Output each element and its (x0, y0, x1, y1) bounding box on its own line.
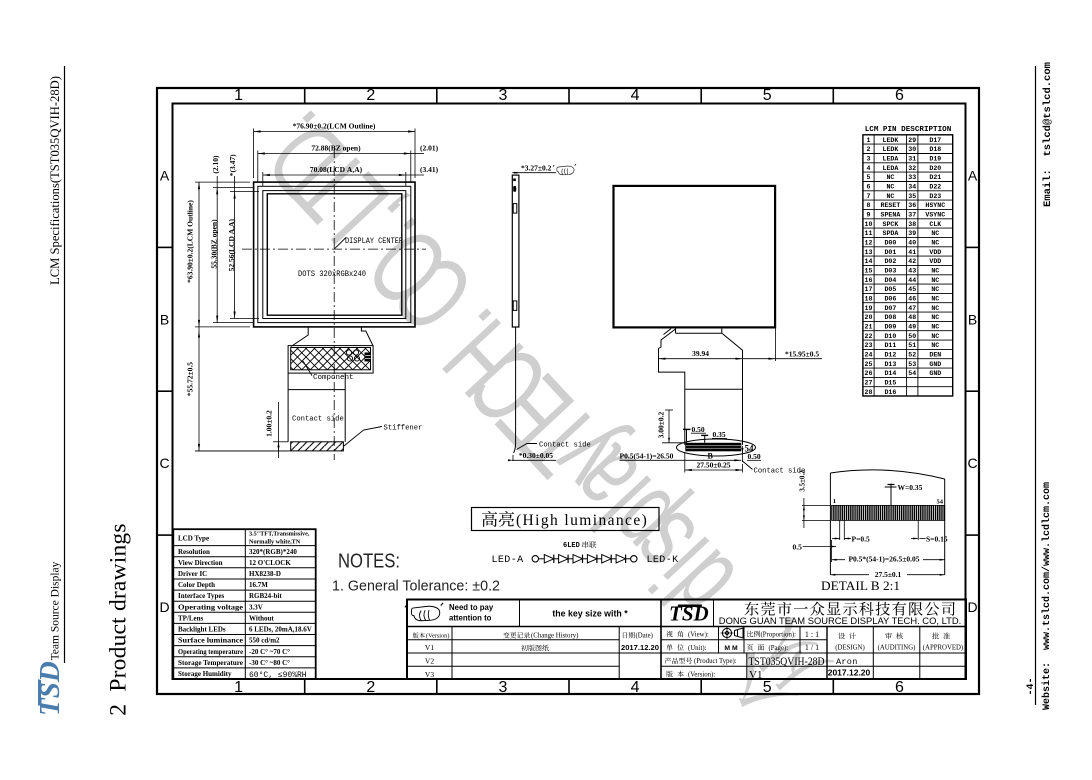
svg-text:2 Product drawings: 2 Product drawings (106, 523, 132, 715)
svg-text:33: 33 (908, 174, 916, 181)
svg-text:Color Depth: Color Depth (178, 581, 215, 589)
svg-text:550 cd/m2: 550 cd/m2 (249, 637, 280, 645)
svg-text:NC: NC (931, 286, 939, 293)
svg-text:11: 11 (865, 230, 873, 237)
svg-text:4: 4 (631, 87, 640, 104)
svg-text:(Page):: (Page): (769, 645, 789, 652)
svg-text:17: 17 (865, 286, 873, 293)
svg-text:NC: NC (931, 333, 939, 340)
svg-text:54: 54 (908, 370, 916, 377)
svg-text:34: 34 (908, 184, 916, 191)
svg-text:D02: D02 (884, 258, 896, 265)
svg-text:Contact side: Contact side (754, 468, 806, 476)
svg-text:*63.90±0.2(LCM Outline): *63.90±0.2(LCM Outline) (186, 200, 195, 283)
svg-text:19: 19 (865, 305, 873, 312)
svg-text:5: 5 (763, 87, 772, 104)
svg-text:D06: D06 (884, 296, 896, 303)
svg-text:NC: NC (931, 230, 939, 237)
svg-text:the key size with *: the key size with * (552, 609, 628, 619)
svg-text:Website: www.tslcd.com/www.lc: Website: www.tslcd.com/www.lcdlcm.com (1041, 482, 1053, 710)
svg-text:DOTS 320xRGBx240: DOTS 320xRGBx240 (298, 269, 366, 279)
svg-text:LEDK: LEDK (882, 137, 898, 144)
svg-text:RESET: RESET (881, 202, 901, 209)
svg-text:Storage Temperature: Storage Temperature (178, 659, 243, 667)
svg-text:70.08(LCD A,A): 70.08(LCD A,A) (310, 165, 363, 174)
svg-text:0.35: 0.35 (713, 430, 726, 439)
svg-text:TP/Lens: TP/Lens (178, 615, 204, 623)
svg-text:B: B (968, 311, 977, 327)
svg-text:NC: NC (931, 296, 939, 303)
svg-text:(Change History): (Change History) (531, 633, 578, 640)
svg-text:Operating voltage: Operating voltage (178, 603, 243, 611)
svg-text:Component: Component (313, 374, 354, 382)
svg-text:LEDA: LEDA (882, 156, 898, 163)
svg-text:D21: D21 (929, 174, 941, 181)
svg-text:3: 3 (498, 679, 507, 696)
svg-text:1. General Tolerance: ±0.2: 1. General Tolerance: ±0.2 (332, 578, 500, 595)
svg-text:1: 1 (234, 679, 243, 696)
svg-text:37: 37 (908, 212, 916, 219)
svg-text:3.5±0.2: 3.5±0.2 (799, 470, 807, 492)
svg-text:SPENA: SPENA (881, 212, 901, 219)
svg-text:Email: tslcd@tslcd.com: Email: tslcd@tslcd.com (1042, 62, 1054, 207)
svg-text:60°C, ≤90%RH: 60°C, ≤90%RH (249, 671, 307, 680)
svg-text:LED-K: LED-K (647, 555, 679, 566)
svg-text:39: 39 (908, 230, 916, 237)
svg-text:NC: NC (931, 342, 939, 349)
svg-text:6: 6 (895, 679, 904, 696)
svg-text:3: 3 (867, 156, 871, 163)
svg-text:D18: D18 (929, 146, 941, 153)
svg-text:(Proportion):: (Proportion): (761, 632, 797, 639)
svg-text:32: 32 (908, 165, 916, 172)
svg-text:LCM Specifications(TST035QVIH-: LCM Specifications(TST035QVIH-28D) (48, 76, 62, 285)
svg-text:47: 47 (908, 305, 916, 312)
svg-text:NOTES:: NOTES: (338, 550, 400, 573)
svg-text:12 O'CLOCK: 12 O'CLOCK (249, 559, 291, 567)
svg-text:35: 35 (908, 193, 916, 200)
svg-text:1.00±0.2: 1.00±0.2 (265, 410, 274, 437)
svg-text:28: 28 (865, 389, 873, 396)
svg-text:TST035QVIH-28D: TST035QVIH-28D (749, 656, 825, 668)
svg-text:P0.5*(54-1)=26.5±0.05: P0.5*(54-1)=26.5±0.05 (848, 555, 919, 564)
svg-text:D: D (967, 599, 977, 615)
svg-text:45: 45 (908, 286, 916, 293)
svg-text:D19: D19 (929, 156, 941, 163)
svg-text:Stiffener: Stiffener (384, 425, 423, 433)
svg-text:D00: D00 (884, 240, 896, 247)
svg-text:13: 13 (865, 249, 873, 256)
svg-text:*15.95±0.5: *15.95±0.5 (785, 350, 819, 359)
svg-text:Need to pay: Need to pay (449, 603, 494, 612)
svg-text:NC: NC (931, 240, 939, 247)
svg-text:41: 41 (908, 249, 916, 256)
svg-text:1: 1 (867, 137, 871, 144)
svg-text:DONG GUAN TEAM SOURCE DISPLAY: DONG GUAN TEAM SOURCE DISPLAY TECH. CO, … (719, 615, 961, 626)
svg-text:15: 15 (865, 268, 873, 275)
svg-text:4: 4 (631, 679, 640, 696)
svg-text:12: 12 (865, 240, 873, 247)
svg-text:(View):: (View): (688, 632, 709, 639)
svg-text:NC: NC (931, 268, 939, 275)
svg-text:D05: D05 (884, 286, 896, 293)
svg-text:72.88(BZ open): 72.88(BZ open) (311, 144, 361, 153)
svg-text:4: 4 (867, 165, 871, 172)
svg-text:46: 46 (908, 296, 916, 303)
svg-text:*76.90±0.2(LCM Outline): *76.90±0.2(LCM Outline) (293, 122, 376, 131)
svg-text:5: 5 (867, 174, 871, 181)
svg-text:DETAIL B 2:1: DETAIL B 2:1 (821, 579, 900, 593)
svg-text:(Version): (Version) (426, 633, 449, 640)
svg-text:B: B (160, 311, 169, 327)
svg-text:D08: D08 (884, 314, 896, 321)
svg-text:P0.5(54-1)=26.50: P0.5(54-1)=26.50 (620, 451, 674, 460)
svg-text:M M: M M (724, 645, 738, 652)
svg-text:SPDA: SPDA (882, 230, 898, 237)
svg-text:D03: D03 (884, 268, 896, 275)
svg-text:6: 6 (895, 87, 904, 104)
svg-text:1: 1 (833, 498, 836, 505)
svg-text:18: 18 (865, 296, 873, 303)
svg-text:C: C (159, 455, 169, 471)
svg-text:D23: D23 (929, 193, 941, 200)
svg-text:39.94: 39.94 (692, 349, 709, 358)
svg-text:30: 30 (908, 146, 916, 153)
svg-text:D13: D13 (884, 361, 896, 368)
svg-text:V1: V1 (425, 643, 434, 652)
svg-text:B: B (708, 452, 714, 461)
svg-text:GND: GND (929, 361, 941, 368)
svg-text:Surface luminance: Surface luminance (178, 637, 243, 645)
svg-text:NC: NC (931, 324, 939, 331)
svg-text:43: 43 (908, 268, 916, 275)
svg-text:25: 25 (865, 361, 873, 368)
svg-text:44: 44 (908, 277, 916, 284)
svg-text:51: 51 (908, 342, 916, 349)
svg-text:D22: D22 (929, 184, 941, 191)
svg-text:6 LEDs, 20mA,18.6V: 6 LEDs, 20mA,18.6V (249, 626, 312, 634)
svg-text:VDD: VDD (929, 249, 941, 256)
svg-text:SPCK: SPCK (882, 221, 898, 228)
svg-text:1 / 1: 1 / 1 (805, 643, 819, 652)
svg-text:3.00±0.2: 3.00±0.2 (657, 411, 666, 438)
svg-text:(2.01): (2.01) (420, 144, 439, 153)
svg-text:attention to: attention to (449, 614, 492, 623)
svg-text:2: 2 (366, 87, 375, 104)
svg-text:LCD Type: LCD Type (178, 535, 209, 543)
svg-text:D09: D09 (884, 324, 896, 331)
svg-text:0.5: 0.5 (793, 543, 803, 552)
svg-text:D14: D14 (884, 370, 896, 377)
svg-text:(Unit):: (Unit): (688, 645, 707, 652)
svg-text:NC: NC (931, 277, 939, 284)
svg-text:*3.27±0.2: *3.27±0.2 (521, 164, 552, 173)
svg-text:A: A (968, 167, 978, 183)
svg-text:31: 31 (908, 156, 916, 163)
svg-text:Resolution: Resolution (178, 548, 210, 556)
svg-text:C: C (967, 455, 977, 471)
svg-text:Team Source Display: Team Source Display (50, 561, 62, 660)
svg-text:52.56(LCD A,A): 52.56(LCD A,A) (227, 219, 236, 272)
svg-text:RGB24-bit: RGB24-bit (249, 592, 282, 600)
svg-text:Backlight LEDs: Backlight LEDs (178, 626, 226, 634)
svg-text:CLK: CLK (929, 221, 941, 228)
svg-text:8: 8 (867, 202, 871, 209)
svg-text:Without: Without (249, 615, 274, 623)
svg-text:2: 2 (867, 146, 871, 153)
svg-text:16.7M: 16.7M (249, 581, 268, 589)
svg-text:16: 16 (865, 277, 873, 284)
svg-text:Contact side: Contact side (292, 416, 344, 424)
svg-text:38: 38 (908, 221, 916, 228)
svg-text:VSYNC: VSYNC (925, 212, 945, 219)
svg-text:320*(RGB)*240: 320*(RGB)*240 (249, 548, 297, 556)
svg-text:NC: NC (931, 305, 939, 312)
svg-text:14: 14 (865, 258, 873, 265)
svg-text:LEDA: LEDA (882, 165, 898, 172)
svg-text:Normally white,TN: Normally white,TN (249, 539, 301, 546)
svg-text:27: 27 (865, 379, 873, 386)
svg-text:22: 22 (865, 333, 873, 340)
svg-text:*0.30±0.05: *0.30±0.05 (519, 451, 553, 460)
svg-text:9: 9 (867, 212, 871, 219)
svg-text:(Version):: (Version): (688, 671, 715, 678)
svg-text:1 : 1: 1 : 1 (805, 630, 819, 639)
svg-text:52: 52 (908, 352, 916, 359)
svg-text:29: 29 (908, 137, 916, 144)
svg-text:10: 10 (865, 221, 873, 228)
svg-text:A: A (160, 167, 170, 183)
svg-text:24: 24 (865, 352, 873, 359)
svg-text:D: D (159, 599, 169, 615)
svg-text:53: 53 (908, 361, 916, 368)
svg-text:-4-: -4- (1026, 677, 1037, 695)
svg-text:D10: D10 (884, 333, 896, 340)
svg-text:3: 3 (498, 87, 507, 104)
svg-text:20: 20 (865, 314, 873, 321)
svg-text:Operating temperature: Operating temperature (178, 648, 243, 656)
svg-text:55.30(BZ open): 55.30(BZ open) (209, 219, 218, 269)
svg-text:HX8238-D: HX8238-D (249, 570, 281, 578)
svg-text:NC: NC (886, 184, 894, 191)
svg-text:Aron: Aron (836, 657, 858, 667)
svg-text:-30 C° ~80 C°: -30 C° ~80 C° (249, 659, 290, 667)
svg-text:*(3.47): *(3.47) (228, 154, 237, 176)
svg-text:D11: D11 (884, 342, 896, 349)
svg-text:View Direction: View Direction (178, 559, 223, 567)
svg-text:NC: NC (886, 193, 894, 200)
svg-text:48: 48 (908, 314, 916, 321)
svg-text:(High luminance): (High luminance) (516, 512, 648, 529)
svg-text:Contact side: Contact side (539, 442, 591, 450)
svg-text:(Product Type):: (Product Type): (694, 658, 737, 665)
svg-text:LCM PIN DESCRIPTION: LCM PIN DESCRIPTION (865, 126, 952, 134)
svg-text:(AUDITING): (AUDITING) (878, 645, 916, 652)
svg-text:27.5±0.1: 27.5±0.1 (875, 570, 902, 579)
svg-text:2: 2 (366, 679, 375, 696)
svg-text:D12: D12 (884, 352, 896, 359)
svg-text:6: 6 (867, 184, 871, 191)
svg-text:5: 5 (763, 679, 772, 696)
svg-text:W=0.35: W=0.35 (898, 483, 923, 492)
svg-text:27.50±0.25: 27.50±0.25 (696, 461, 730, 470)
svg-text:3.3V: 3.3V (249, 603, 263, 611)
svg-text:HSYNC: HSYNC (925, 202, 945, 209)
svg-text:49: 49 (908, 324, 916, 331)
svg-text:D16: D16 (884, 389, 896, 396)
svg-text:DEN: DEN (929, 352, 941, 359)
svg-text:42: 42 (908, 258, 916, 265)
svg-text:(APPROVED): (APPROVED) (923, 645, 963, 652)
svg-text:-20 C° ~70 C°: -20 C° ~70 C° (249, 648, 290, 656)
svg-text:D15: D15 (884, 379, 896, 386)
svg-text:Driver IC: Driver IC (178, 570, 207, 578)
svg-text:VDD: VDD (929, 258, 941, 265)
svg-text:V1: V1 (749, 669, 762, 681)
svg-text:LED-A: LED-A (492, 555, 524, 566)
svg-text:V3: V3 (425, 670, 434, 679)
svg-text:2017.12.20: 2017.12.20 (621, 643, 659, 652)
svg-text:*55.72±0.5: *55.72±0.5 (186, 362, 195, 396)
svg-text:D01: D01 (884, 249, 896, 256)
svg-text:(DESIGN): (DESIGN) (835, 645, 864, 652)
svg-text:(3.41): (3.41) (420, 165, 439, 174)
svg-text:GND: GND (929, 370, 941, 377)
svg-text:0.50: 0.50 (748, 452, 761, 461)
svg-text:DISPLAY CENTER: DISPLAY CENTER (345, 237, 403, 246)
svg-text:P=0.5: P=0.5 (852, 535, 870, 544)
svg-text:36: 36 (908, 202, 916, 209)
svg-text:50: 50 (908, 333, 916, 340)
svg-text:3.5"TFT,Transmissive,: 3.5"TFT,Transmissive, (249, 531, 310, 538)
svg-text:7: 7 (867, 193, 871, 200)
svg-text:Interface Types: Interface Types (178, 592, 224, 600)
svg-text:S=0.15: S=0.15 (926, 535, 948, 544)
svg-text:NC: NC (931, 314, 939, 321)
svg-text:V2: V2 (425, 657, 434, 666)
svg-text:LEDK: LEDK (882, 146, 898, 153)
svg-text:21: 21 (865, 324, 873, 331)
svg-text:(2.10): (2.10) (211, 155, 220, 174)
svg-text:D07: D07 (884, 305, 896, 312)
svg-text:D20: D20 (929, 165, 941, 172)
svg-text:40: 40 (908, 240, 916, 247)
svg-text:26: 26 (865, 370, 873, 377)
svg-text:Storage Humidity: Storage Humidity (178, 670, 232, 678)
svg-text:23: 23 (865, 342, 873, 349)
svg-text:(Date): (Date) (636, 633, 653, 640)
svg-text:1: 1 (234, 87, 243, 104)
svg-text:D04: D04 (884, 277, 896, 284)
svg-text:2017.12.20: 2017.12.20 (828, 667, 871, 677)
svg-text:6LED: 6LED (563, 542, 580, 550)
svg-text:0.50: 0.50 (692, 425, 705, 434)
svg-text:54: 54 (937, 499, 944, 506)
svg-text:NC: NC (886, 174, 894, 181)
svg-text:D17: D17 (929, 137, 941, 144)
